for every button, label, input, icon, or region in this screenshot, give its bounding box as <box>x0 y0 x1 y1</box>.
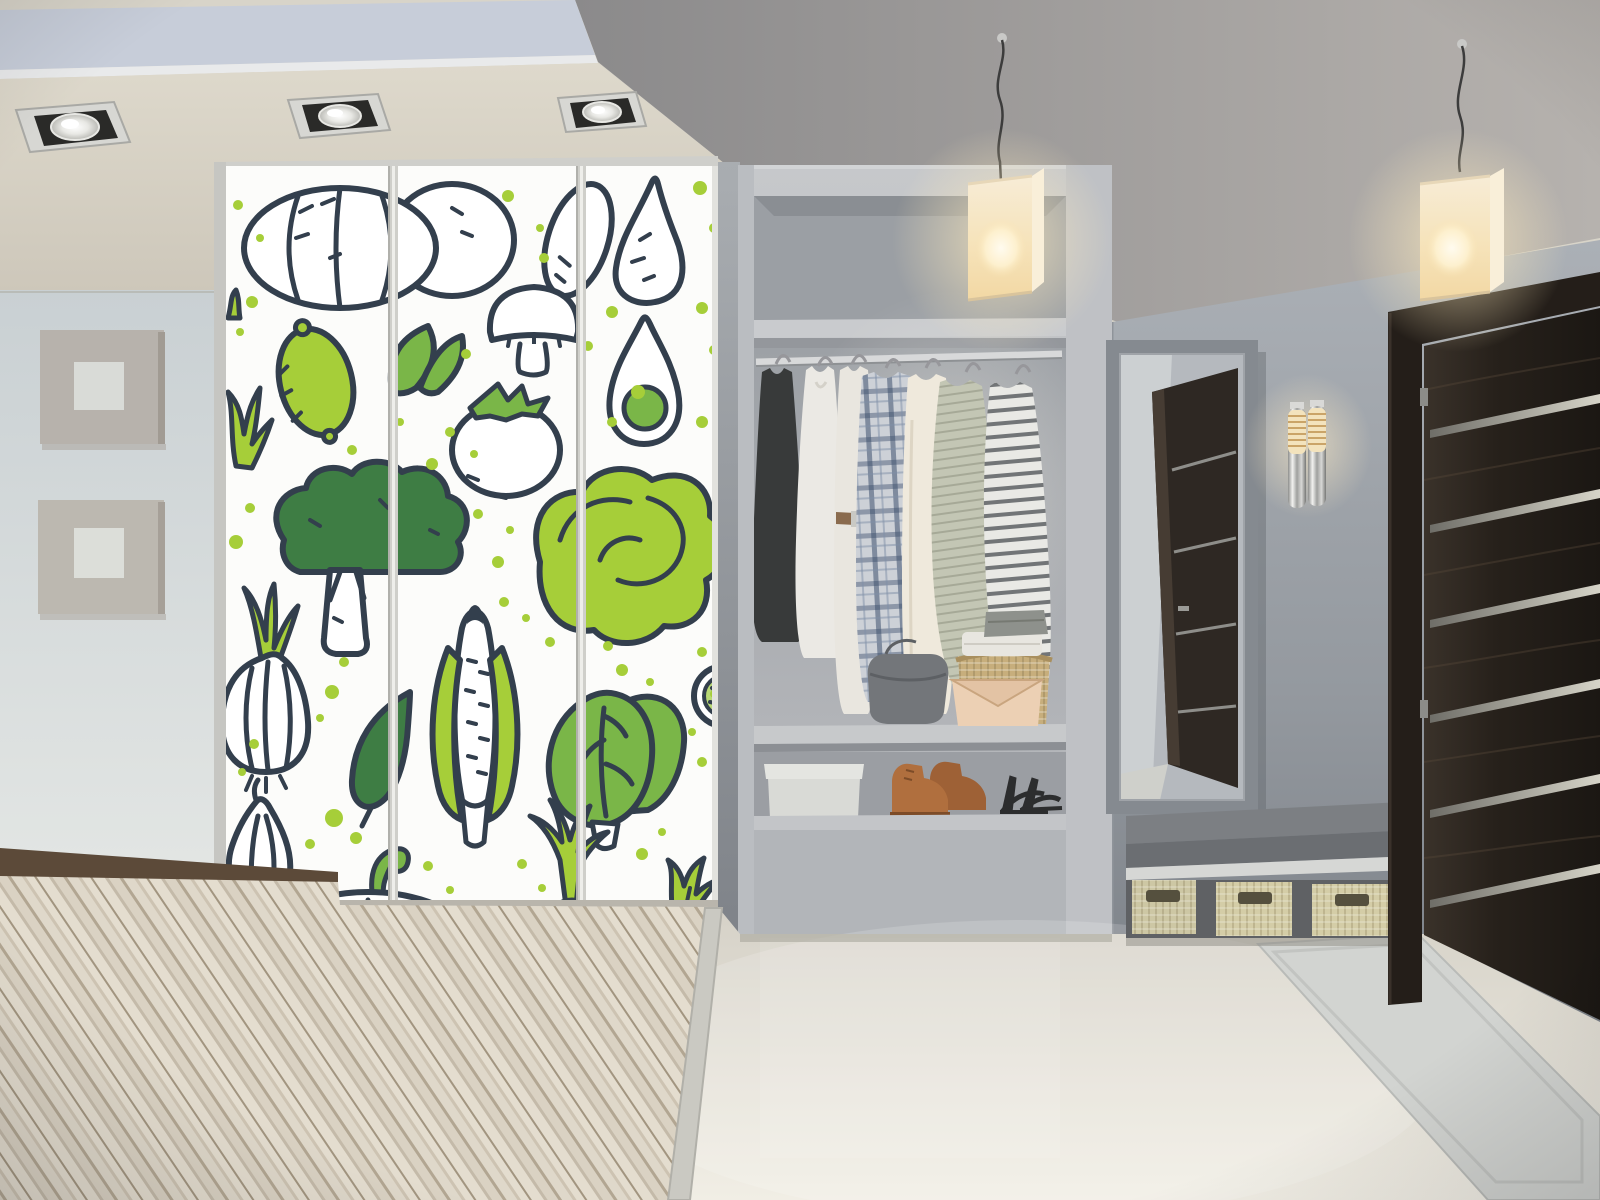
hallway-photo <box>0 0 1600 1200</box>
vignette <box>0 0 1600 1200</box>
scene-canvas <box>0 0 1600 1200</box>
